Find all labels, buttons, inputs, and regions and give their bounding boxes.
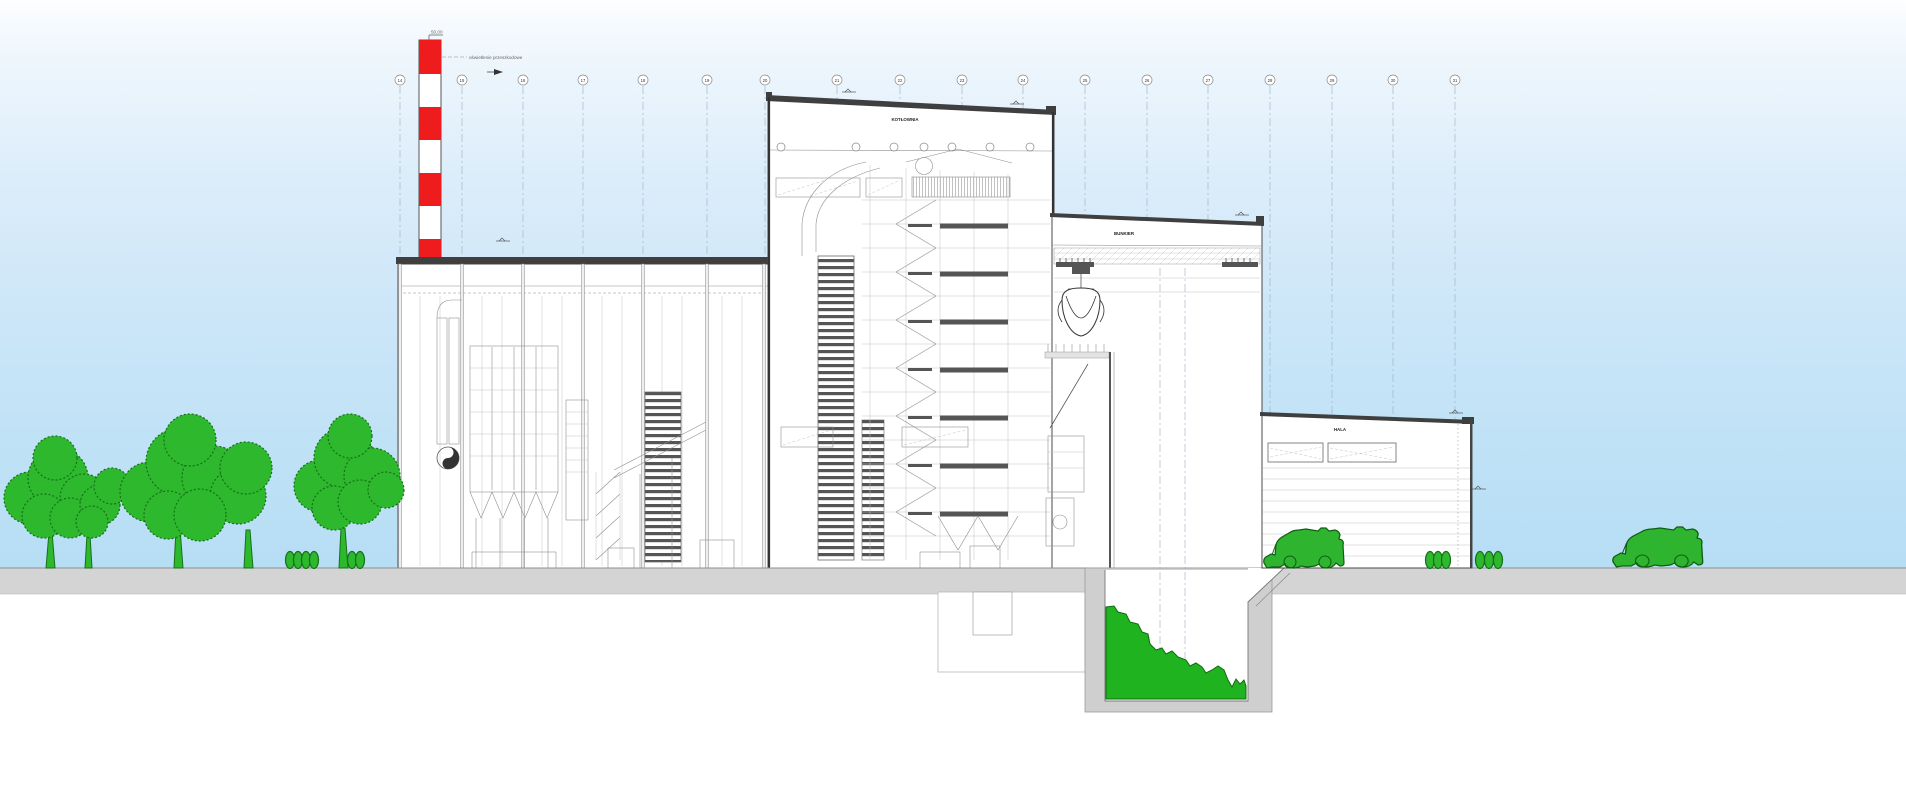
grid-axis-label: 25	[1083, 78, 1088, 83]
boiler-house: KOTŁOWNIA	[766, 89, 1056, 568]
chimney-red-band	[419, 239, 441, 260]
grid-axis-label: 30	[1391, 78, 1396, 83]
chimney: 50,00 oświetlenie przeszkodowe	[419, 30, 523, 261]
tree-trunk	[244, 530, 253, 568]
elevation-mark-icon	[1010, 101, 1024, 104]
ground	[0, 568, 1906, 672]
grid-axis-label: 16	[521, 78, 526, 83]
unloading-hall-label: HALA	[1334, 427, 1347, 432]
tree-trunk	[339, 528, 348, 568]
chimney-elevation-label: 50,00	[431, 30, 443, 35]
grid-axis-label: 17	[581, 78, 586, 83]
filter-tower	[645, 392, 681, 562]
filter-tower-small	[862, 420, 884, 560]
grid-axis-label: 20	[763, 78, 768, 83]
elevation-mark-icon	[1449, 410, 1463, 413]
grid-axis-label: 23	[960, 78, 965, 83]
annotation-arrow-icon	[487, 69, 503, 75]
grid-axis-label: 14	[398, 78, 403, 83]
grid-axis-label: 22	[898, 78, 903, 83]
flue-gas-hall	[396, 238, 772, 568]
tree-canopy	[4, 414, 404, 541]
bunker-hall-label: BUNKIER	[1114, 231, 1135, 236]
basement-pit	[973, 592, 1012, 635]
elevation-mark-icon	[1472, 486, 1486, 489]
grid-axis-label: 31	[1453, 78, 1458, 83]
grid-axis-label: 29	[1330, 78, 1335, 83]
grid-axis-label: 19	[705, 78, 710, 83]
chimney-red-band	[419, 40, 441, 74]
plant-section-drawing: 14 15 16 17 18 19 20 21 22 23 24 25 26 2…	[0, 0, 1906, 795]
bag-filter-tower	[818, 256, 854, 560]
tree-trunk	[85, 534, 92, 568]
garbage-truck	[1613, 527, 1703, 567]
elevation-mark-icon	[1235, 212, 1249, 215]
obstacle-light-label: oświetlenie przeszkodowe	[469, 55, 523, 60]
grid-axis-label: 15	[460, 78, 465, 83]
elevation-mark-icon	[496, 238, 510, 241]
grid-axis-label: 21	[835, 78, 840, 83]
grid-axis-label: 26	[1145, 78, 1150, 83]
elevation-mark-icon	[842, 89, 856, 92]
chimney-red-band	[419, 107, 441, 140]
bunker-hall: BUNKIER	[1045, 212, 1264, 568]
chimney-red-band	[419, 173, 441, 206]
tree-group-left	[4, 414, 404, 568]
grid-axis-label: 18	[641, 78, 646, 83]
boiler-house-label: KOTŁOWNIA	[891, 117, 919, 122]
grid-axis-label: 24	[1021, 78, 1026, 83]
louvre-window-band	[1268, 443, 1396, 462]
crane-trolley	[1072, 266, 1090, 274]
grid-axis-label: 28	[1268, 78, 1273, 83]
grid-axis-label: 27	[1206, 78, 1211, 83]
flue-gas-hall-roof	[396, 257, 772, 264]
